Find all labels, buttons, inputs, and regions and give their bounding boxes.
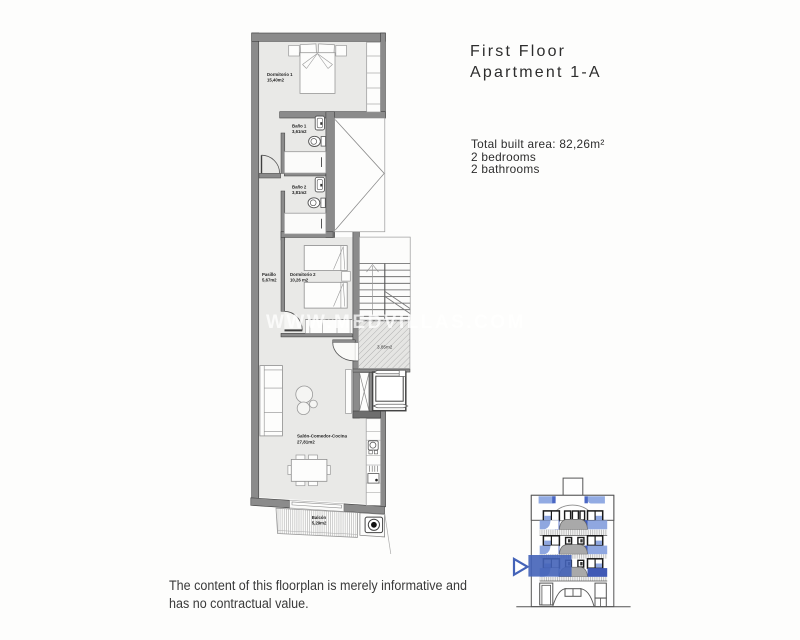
svg-text:27,81m2: 27,81m2 [297,440,315,445]
svg-text:5,67m2: 5,67m2 [262,278,277,283]
svg-text:Balcón: Balcón [312,515,327,520]
svg-text:3,81m2: 3,81m2 [292,190,307,195]
svg-text:Pasillo: Pasillo [262,272,276,277]
svg-text:Dormitorio 1: Dormitorio 1 [267,72,293,77]
svg-text:Baño 2: Baño 2 [292,185,307,190]
svg-text:3,85m2: 3,85m2 [377,345,393,350]
svg-text:Dormitorio 2: Dormitorio 2 [290,272,316,277]
svg-text:5,29m2: 5,29m2 [312,521,327,526]
svg-text:15,40m2: 15,40m2 [267,78,285,83]
svg-text:Salón-Comedor-Cocina: Salón-Comedor-Cocina [297,434,348,439]
svg-text:Baño 1: Baño 1 [292,124,307,129]
svg-text:3,61m2: 3,61m2 [292,129,307,134]
svg-text:10,26 m2: 10,26 m2 [290,278,309,283]
